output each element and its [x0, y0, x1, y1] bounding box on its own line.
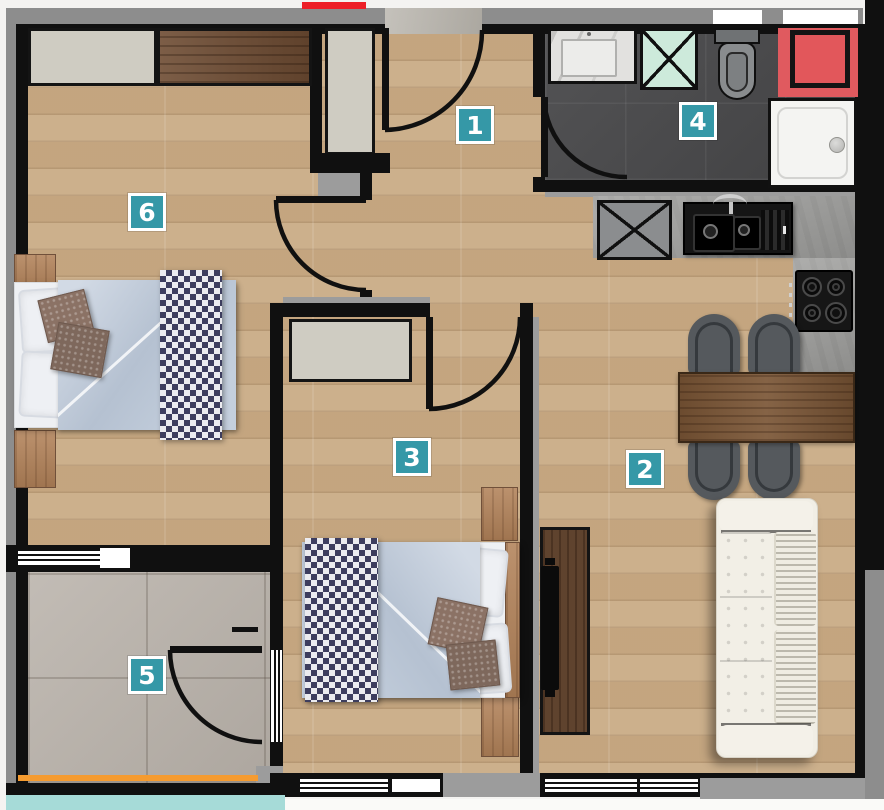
laundry-red-box-frame [790, 30, 850, 88]
room-label-2: 2 [626, 450, 664, 488]
burner-icon [802, 277, 822, 297]
tv-stand-foot [545, 558, 555, 565]
bottom-window-2 [392, 779, 440, 792]
sink-strainer-1 [703, 224, 718, 239]
nightstand [481, 487, 518, 541]
sofa-armrest [719, 725, 813, 755]
hall-closet [325, 28, 375, 155]
floor-plan: 1 2 3 4 5 6 [0, 0, 884, 810]
sink-detail-dot [783, 226, 786, 234]
sink-strainer-2 [738, 224, 750, 236]
exterior-edge-right-dark [865, 0, 884, 570]
bottom-window-4 [640, 779, 698, 792]
wall-bottom-gray-right [700, 778, 865, 800]
dining-chair [748, 314, 800, 376]
room-label-text: 1 [466, 111, 483, 140]
sofa-armrest [719, 501, 813, 531]
sofa-back-cushion [774, 532, 816, 626]
kitchen-sink [683, 202, 793, 255]
entrance-threshold [385, 8, 482, 34]
wall-bottom-gray-slab [443, 773, 540, 797]
wardrobe-6-gray [28, 28, 157, 86]
chair-seat-line [755, 440, 793, 492]
washbasin-bowl [561, 39, 617, 77]
double-bed-room3 [302, 540, 520, 700]
tv-stand-foot [545, 690, 555, 697]
sofa [716, 498, 818, 758]
bottom-window-1 [300, 779, 388, 792]
sofa-back-cushion [774, 630, 816, 724]
chair-seat-line [755, 322, 793, 376]
bottom-window-3 [545, 779, 637, 792]
wall-bath-left-upper [533, 24, 545, 97]
wall-balcony-bottom [6, 783, 283, 795]
kitchen-shaft [597, 200, 672, 260]
chair-seat-line [695, 322, 733, 376]
toilet [714, 28, 760, 102]
dining-chair [748, 440, 800, 500]
double-bed-room6 [14, 280, 236, 430]
balcony-strip-teal [6, 795, 285, 810]
cushion [446, 640, 501, 691]
burner-icon [803, 304, 821, 322]
washbasin [548, 28, 637, 84]
entrance-red-bar [302, 2, 366, 9]
bottom-white-strip [285, 799, 884, 810]
balcony-glass-door [271, 650, 282, 742]
room-label-text: 2 [636, 455, 653, 484]
wall-bath-left-lower [533, 177, 545, 192]
wall-room3-right [520, 303, 533, 773]
hob-control-dots [789, 283, 792, 317]
sofa-seat [720, 532, 772, 724]
room-label-4: 4 [679, 102, 717, 140]
chair-seat-line [695, 440, 733, 492]
bath-shaft-mint [640, 28, 698, 90]
room-label-5: 5 [128, 656, 166, 694]
wardrobe-3 [289, 319, 412, 382]
washbasin-tap-dot [587, 32, 591, 36]
room-label-text: 5 [138, 661, 155, 690]
nightstand [14, 430, 56, 488]
room-label-text: 6 [138, 198, 155, 227]
checkered-throw [305, 538, 378, 702]
gas-hob [795, 270, 853, 332]
toilet-bowl-inner [726, 52, 748, 92]
room-label-1: 1 [456, 106, 494, 144]
tv-icon [541, 566, 559, 690]
laundry-red-box [778, 28, 858, 97]
wall-lining-closet [318, 173, 360, 198]
faucet-stub [729, 202, 733, 214]
wall-door6-jamb-top [360, 173, 372, 200]
shower-tray [768, 98, 857, 188]
shower-drain-icon [829, 137, 845, 153]
wall-stub-balcony [232, 627, 258, 632]
nightstand [481, 697, 519, 757]
wall-room3-top [270, 303, 430, 317]
room-label-text: 4 [689, 107, 706, 136]
cushion [50, 322, 110, 378]
wall-lining-room3-right [533, 317, 539, 773]
dining-chair [688, 314, 740, 376]
dining-chair [688, 440, 740, 500]
checkered-throw [160, 270, 222, 440]
wall-below-closet [310, 153, 390, 173]
exterior-band-right [865, 570, 884, 802]
room-label-3: 3 [393, 438, 431, 476]
burner-icon [825, 302, 847, 324]
wardrobe-6-wood [157, 28, 312, 86]
balcony-rail-orange [18, 775, 258, 781]
top-window-1 [713, 10, 762, 24]
balcony-window-block [100, 548, 130, 568]
dining-table [678, 372, 855, 443]
room-label-6: 6 [128, 193, 166, 231]
top-window-2 [783, 10, 858, 24]
room-label-text: 3 [403, 443, 420, 472]
burner-icon [827, 278, 845, 296]
